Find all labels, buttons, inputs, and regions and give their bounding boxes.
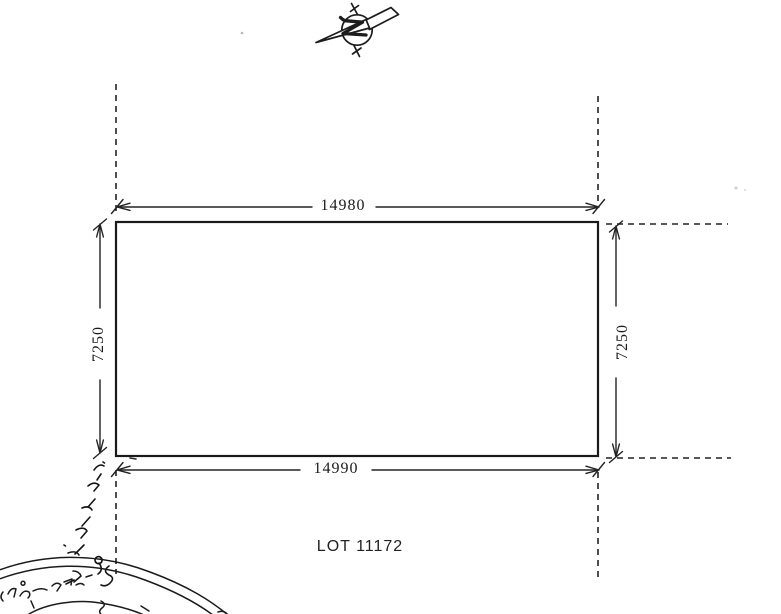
compass-top-tick (351, 4, 359, 15)
stamp-handwriting-stroke (86, 575, 92, 577)
handwriting-stroke (76, 528, 87, 538)
scan-specks (130, 32, 746, 459)
handwriting-stroke (88, 483, 99, 491)
lot-number-label: LOT 11172 (314, 538, 406, 556)
stamp-handwriting-stroke (52, 583, 61, 591)
stamp-handwriting-stroke (1, 592, 3, 601)
dim-label-left: 7250 (90, 322, 108, 366)
stamp-handwriting-stroke (76, 584, 84, 586)
extension-lines (116, 84, 731, 578)
compass-bottom-tick (353, 46, 362, 57)
handwriting-stroke (94, 465, 104, 470)
stamp-handwriting-stroke (31, 601, 34, 608)
scan-speck (241, 32, 244, 35)
north-arrow-icon (316, 4, 399, 57)
handwriting-stroke (103, 462, 105, 463)
scan-speck (744, 189, 746, 191)
survey-plan-page: 14980 14990 7250 7250 LOT 11172 (0, 0, 781, 614)
handwriting-stroke (64, 545, 66, 546)
handwriting-stroke (68, 552, 79, 555)
dim-label-top: 14980 (318, 197, 369, 215)
scan-speck (130, 458, 136, 459)
stamp-handwriting-stroke (64, 579, 72, 585)
survey-plan-drawing (0, 0, 781, 614)
stamp-handwriting-stroke (141, 606, 149, 611)
dimension-lines (94, 200, 623, 477)
stamp-handwriting-stroke (20, 591, 30, 598)
handwriting-stroke (97, 474, 101, 480)
stamp-handwriting-stroke (8, 589, 16, 597)
stamp-outer-arc (0, 557, 236, 614)
scan-speck (735, 187, 738, 190)
handwriting-stroke (88, 499, 95, 507)
dim-label-bottom: 14990 (311, 460, 362, 478)
handwriting-stroke (82, 507, 92, 510)
parcel-boundary (116, 222, 598, 456)
stamp-seal (0, 557, 236, 614)
stamp-handwriting-stroke (33, 589, 47, 591)
dim-label-right: 7250 (614, 320, 632, 364)
stamp-inner-circle-arc (26, 602, 154, 614)
handwriting-stroke (82, 517, 90, 526)
stamp-handwriting-stroke (21, 581, 25, 585)
